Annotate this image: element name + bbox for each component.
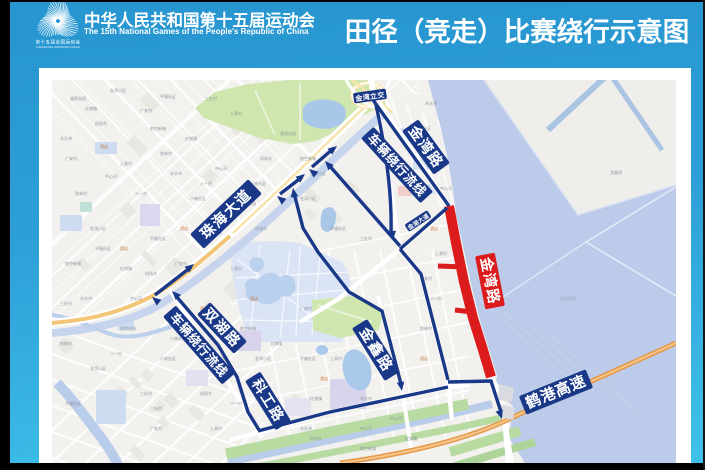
svg-text:上表村: 上表村: [330, 355, 342, 361]
svg-text:中心河: 中心河: [105, 173, 117, 179]
svg-text:木头冲: 木头冲: [360, 395, 372, 401]
svg-text:小林社区: 小林社区: [160, 355, 176, 361]
svg-text:湖滨花园: 湖滨花园: [70, 95, 86, 101]
svg-text:鱼林村: 鱼林村: [60, 340, 72, 346]
svg-text:红旗镇: 红旗镇: [85, 105, 97, 111]
svg-text:平塘社区: 平塘社区: [95, 245, 111, 251]
svg-text:小林社区: 小林社区: [190, 195, 206, 201]
svg-text:金湾小区: 金湾小区: [110, 87, 126, 93]
svg-text:机场东: 机场东: [200, 390, 212, 396]
svg-text:湖滨花园: 湖滨花园: [120, 325, 136, 331]
svg-text:湖滨花园: 湖滨花园: [280, 130, 296, 136]
svg-text:红旗镇: 红旗镇: [120, 265, 132, 271]
svg-text:金湾小区: 金湾小区: [255, 355, 271, 361]
svg-text:中心河: 中心河: [360, 425, 372, 431]
svg-text:八一村: 八一村: [110, 350, 122, 356]
svg-text:金湾航道: 金湾航道: [560, 295, 576, 301]
svg-text:鱼林村: 鱼林村: [160, 150, 172, 156]
svg-text:八一村: 八一村: [200, 180, 212, 186]
svg-text:平塘社区: 平塘社区: [330, 225, 346, 231]
svg-text:酒店: 酒店: [120, 245, 128, 251]
svg-text:木头冲: 木头冲: [170, 170, 182, 176]
svg-text:中心河: 中心河: [440, 185, 452, 191]
svg-text:中心河: 中心河: [390, 415, 402, 421]
svg-text:广安村: 广安村: [175, 260, 187, 266]
svg-text:航空新城: 航空新城: [300, 155, 316, 161]
svg-text:金湾小区: 金湾小区: [90, 225, 106, 231]
svg-text:八一村: 八一村: [230, 400, 242, 406]
svg-text:上表村: 上表村: [120, 160, 132, 166]
svg-text:酒店: 酒店: [250, 295, 258, 301]
svg-text:航空新城: 航空新城: [150, 125, 166, 131]
svg-text:酒店: 酒店: [430, 225, 438, 231]
svg-text:三灶村: 三灶村: [60, 300, 72, 306]
svg-text:平塘社区: 平塘社区: [160, 93, 176, 99]
svg-text:鱼林村: 鱼林村: [420, 325, 432, 331]
svg-text:平塘社区: 平塘社区: [150, 235, 166, 241]
svg-text:木头冲: 木头冲: [425, 100, 437, 106]
svg-text:木头冲: 木头冲: [60, 135, 72, 141]
svg-text:三灶村: 三灶村: [360, 235, 372, 241]
svg-text:GUANGDONG·HONGKONG·MACAO: GUANGDONG·HONGKONG·MACAO: [36, 45, 80, 49]
svg-text:木头冲: 木头冲: [80, 295, 92, 301]
svg-text:红旗镇: 红旗镇: [270, 340, 282, 346]
svg-text:中心河: 中心河: [130, 295, 142, 301]
svg-text:酒店: 酒店: [320, 375, 328, 381]
svg-text:三灶村: 三灶村: [150, 405, 162, 411]
svg-text:红旗镇: 红旗镇: [405, 435, 417, 441]
svg-text:广安村: 广安村: [300, 305, 312, 311]
svg-text:平塘社区: 平塘社区: [300, 355, 316, 361]
svg-text:平塘社区: 平塘社区: [65, 400, 81, 406]
svg-text:酒店: 酒店: [100, 143, 108, 149]
svg-text:航空新城: 航空新城: [240, 325, 256, 331]
svg-text:机场东: 机场东: [255, 225, 267, 231]
svg-text:航空新城: 航空新城: [65, 260, 81, 266]
svg-text:机场东: 机场东: [145, 270, 157, 276]
svg-text:机场东: 机场东: [95, 120, 107, 126]
svg-text:航空新城: 航空新城: [360, 445, 376, 451]
svg-text:机场东: 机场东: [260, 155, 272, 161]
svg-text:三灶村: 三灶村: [140, 390, 152, 396]
svg-text:三灶村: 三灶村: [205, 95, 217, 101]
svg-text:红旗镇: 红旗镇: [185, 135, 197, 141]
svg-text:上表村: 上表村: [230, 110, 242, 116]
svg-text:八一村: 八一村: [430, 295, 442, 301]
svg-text:中心河: 中心河: [215, 165, 227, 171]
svg-text:八一村: 八一村: [135, 190, 147, 196]
svg-text:上表村: 上表村: [230, 265, 242, 271]
svg-text:上表村: 上表村: [210, 425, 222, 431]
svg-text:酒店: 酒店: [420, 355, 428, 361]
svg-text:上表村: 上表村: [435, 250, 447, 256]
svg-text:广安村: 广安村: [150, 425, 162, 431]
svg-text:龙屋排: 龙屋排: [610, 169, 622, 175]
svg-text:金湾小区: 金湾小区: [90, 365, 106, 371]
svg-text:金湾小区: 金湾小区: [300, 195, 316, 201]
svg-text:机场东: 机场东: [310, 435, 322, 441]
svg-text:红旗镇: 红旗镇: [310, 395, 322, 401]
svg-text:木头冲: 木头冲: [300, 425, 312, 431]
svg-text:鱼林村: 鱼林村: [75, 190, 87, 196]
svg-text:广安村: 广安村: [65, 155, 77, 161]
svg-text:广安村: 广安村: [140, 107, 152, 113]
svg-text:酒店: 酒店: [180, 225, 188, 231]
